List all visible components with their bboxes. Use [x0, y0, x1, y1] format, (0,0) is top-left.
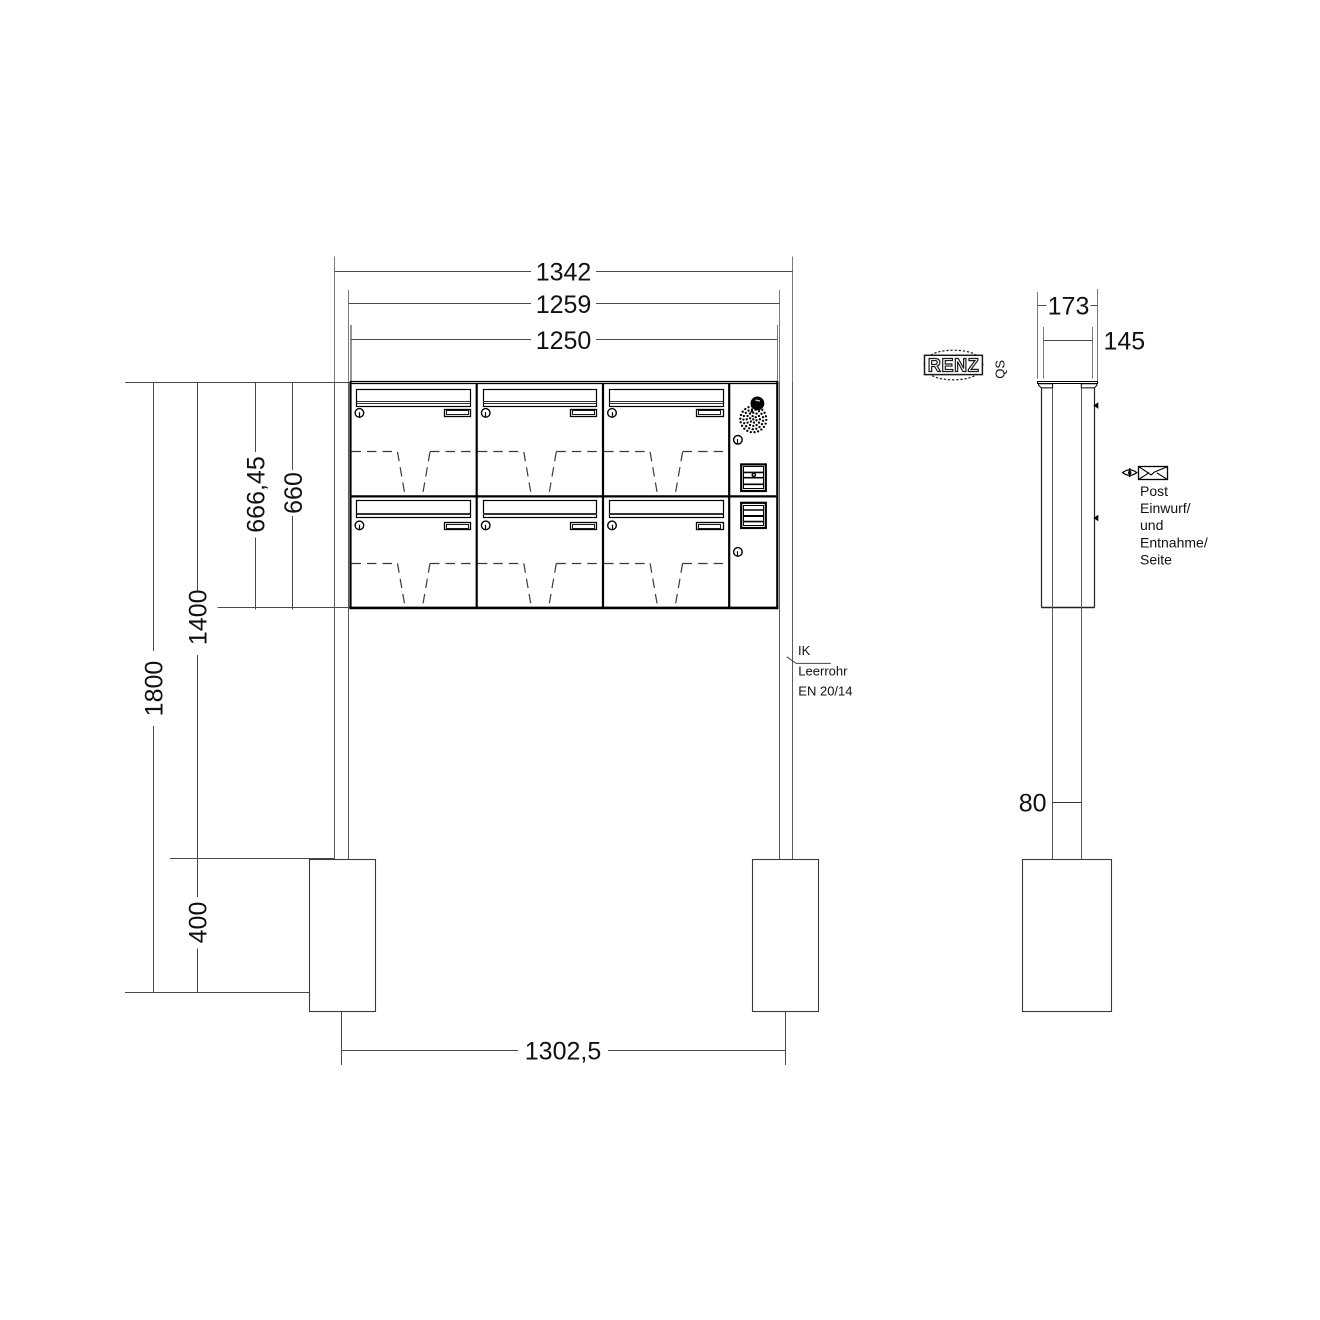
svg-text:und: und: [1140, 517, 1163, 533]
svg-text:660: 660: [280, 472, 308, 514]
svg-text:173: 173: [1048, 293, 1090, 321]
svg-text:1342: 1342: [536, 258, 592, 286]
svg-text:1259: 1259: [536, 291, 592, 319]
svg-text:400: 400: [185, 902, 213, 944]
svg-text:QS: QS: [992, 360, 1007, 379]
svg-text:EN 20/14: EN 20/14: [798, 683, 852, 698]
svg-text:Post: Post: [1140, 483, 1168, 499]
svg-text:1302,5: 1302,5: [525, 1037, 601, 1065]
svg-text:1400: 1400: [185, 589, 213, 645]
svg-text:IK: IK: [798, 643, 811, 658]
svg-text:1250: 1250: [536, 327, 592, 355]
svg-text:1800: 1800: [141, 661, 169, 717]
svg-text:Leerrohr: Leerrohr: [798, 664, 848, 679]
svg-text:RENZ: RENZ: [928, 356, 979, 376]
svg-text:Einwurf/: Einwurf/: [1140, 500, 1191, 516]
svg-text:145: 145: [1104, 327, 1146, 355]
svg-text:Entnahme/: Entnahme/: [1140, 534, 1208, 550]
svg-text:666,45: 666,45: [243, 456, 271, 532]
svg-text:Seite: Seite: [1140, 551, 1172, 567]
svg-text:80: 80: [1019, 790, 1047, 818]
